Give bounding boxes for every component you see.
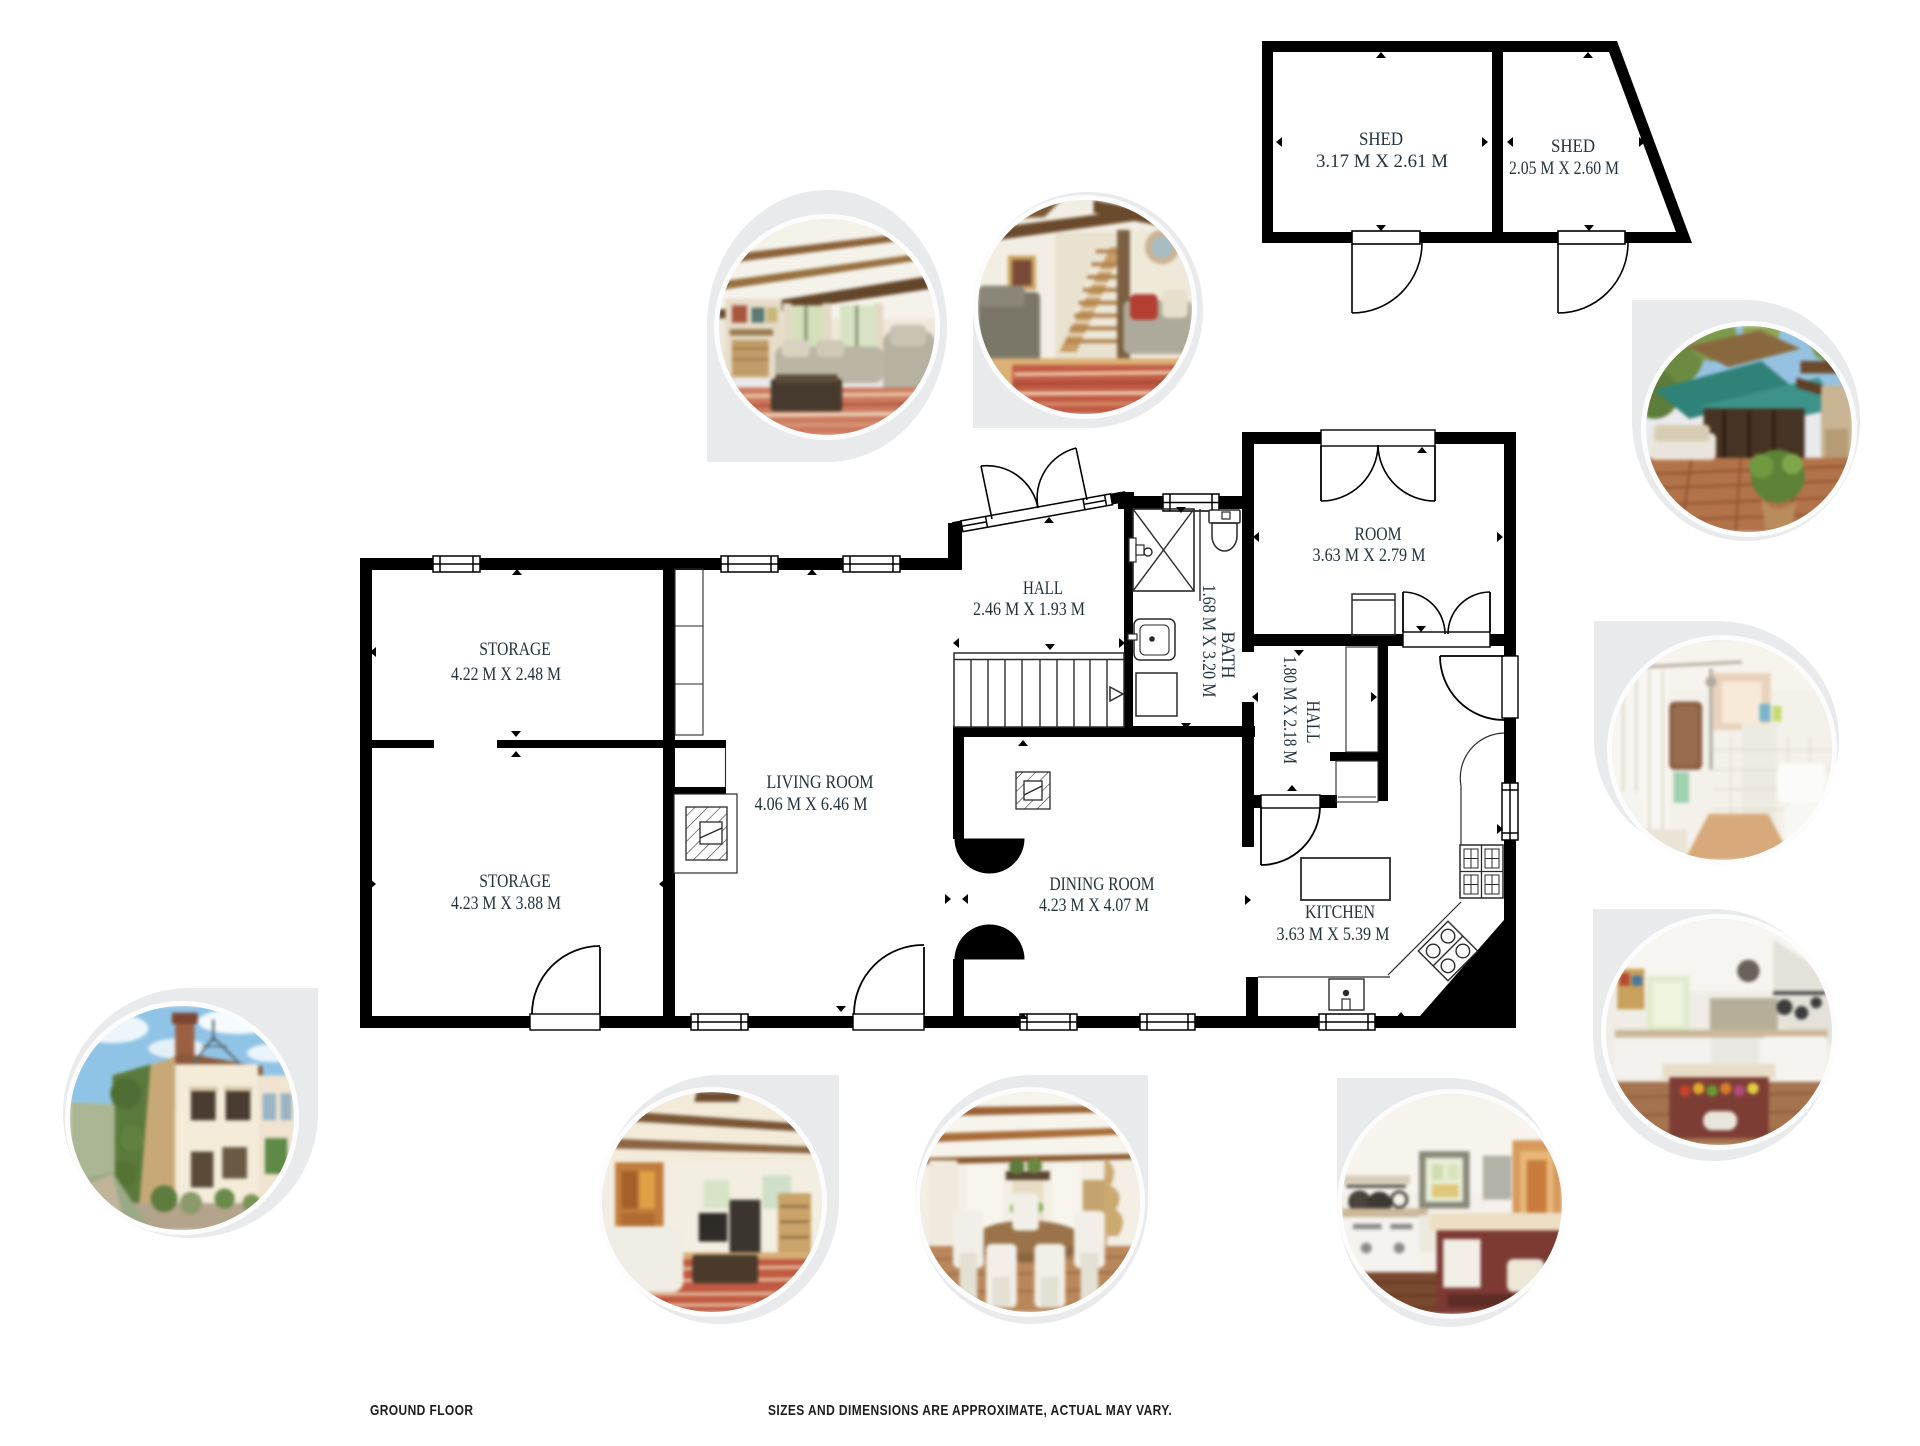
svg-text:4.06 M X 6.46 M: 4.06 M X 6.46 M [755, 794, 868, 815]
svg-text:ROOM: ROOM [1355, 524, 1402, 545]
svg-text:HALL: HALL [1023, 578, 1063, 599]
svg-text:2.05 M X 2.60 M: 2.05 M X 2.60 M [1509, 158, 1619, 179]
svg-text:DINING ROOM: DINING ROOM [1050, 874, 1155, 895]
svg-text:3.17 M X 2.61 M: 3.17 M X 2.61 M [1316, 151, 1448, 172]
svg-text:1.68 M X 3.20 M: 1.68 M X 3.20 M [1198, 585, 1219, 698]
svg-text:3.63 M X 5.39 M: 3.63 M X 5.39 M [1277, 924, 1390, 945]
svg-text:STORAGE: STORAGE [479, 871, 551, 892]
svg-text:STORAGE: STORAGE [479, 639, 551, 660]
svg-text:HALL: HALL [1302, 701, 1323, 744]
svg-text:SHED: SHED [1359, 129, 1403, 150]
svg-text:SHED: SHED [1551, 136, 1595, 157]
svg-text:4.22 M X 2.48 M: 4.22 M X 2.48 M [451, 664, 561, 685]
svg-text:1.80 M X 2.18 M: 1.80 M X 2.18 M [1279, 656, 1300, 764]
svg-text:BATH: BATH [1217, 632, 1238, 679]
svg-text:2.46 M X 1.93 M: 2.46 M X 1.93 M [973, 599, 1085, 620]
svg-text:LIVING ROOM: LIVING ROOM [767, 772, 874, 793]
svg-text:4.23 M X 4.07 M: 4.23 M X 4.07 M [1039, 895, 1149, 916]
svg-text:KITCHEN: KITCHEN [1305, 902, 1375, 923]
svg-text:3.63 M X 2.79 M: 3.63 M X 2.79 M [1313, 545, 1426, 566]
svg-text:4.23 M X 3.88 M: 4.23 M X 3.88 M [451, 893, 561, 914]
